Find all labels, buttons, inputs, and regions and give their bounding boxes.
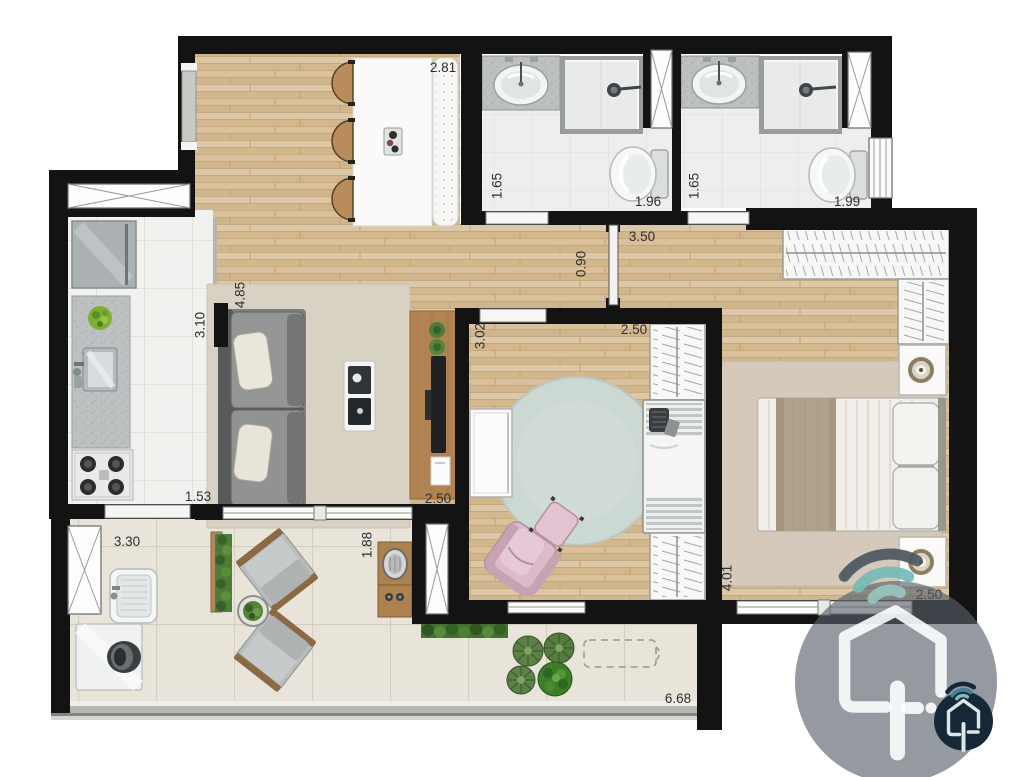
- svg-text:1.99: 1.99: [834, 194, 860, 209]
- svg-text:2.81: 2.81: [430, 60, 456, 75]
- svg-text:3.50: 3.50: [629, 229, 655, 244]
- svg-text:4.85: 4.85: [233, 282, 248, 308]
- svg-text:1.53: 1.53: [185, 489, 211, 504]
- svg-text:3.30: 3.30: [114, 534, 140, 549]
- svg-text:2.50: 2.50: [621, 322, 647, 337]
- svg-text:1.88: 1.88: [360, 532, 375, 558]
- svg-text:0.90: 0.90: [574, 251, 589, 277]
- svg-text:1.65: 1.65: [490, 173, 505, 199]
- svg-text:3.02: 3.02: [473, 323, 488, 349]
- svg-text:2.50: 2.50: [425, 491, 451, 506]
- svg-text:1.96: 1.96: [635, 194, 661, 209]
- svg-text:1.65: 1.65: [687, 173, 702, 199]
- svg-text:6.68: 6.68: [665, 691, 691, 706]
- svg-text:3.10: 3.10: [193, 312, 208, 338]
- svg-text:4.01: 4.01: [720, 565, 735, 591]
